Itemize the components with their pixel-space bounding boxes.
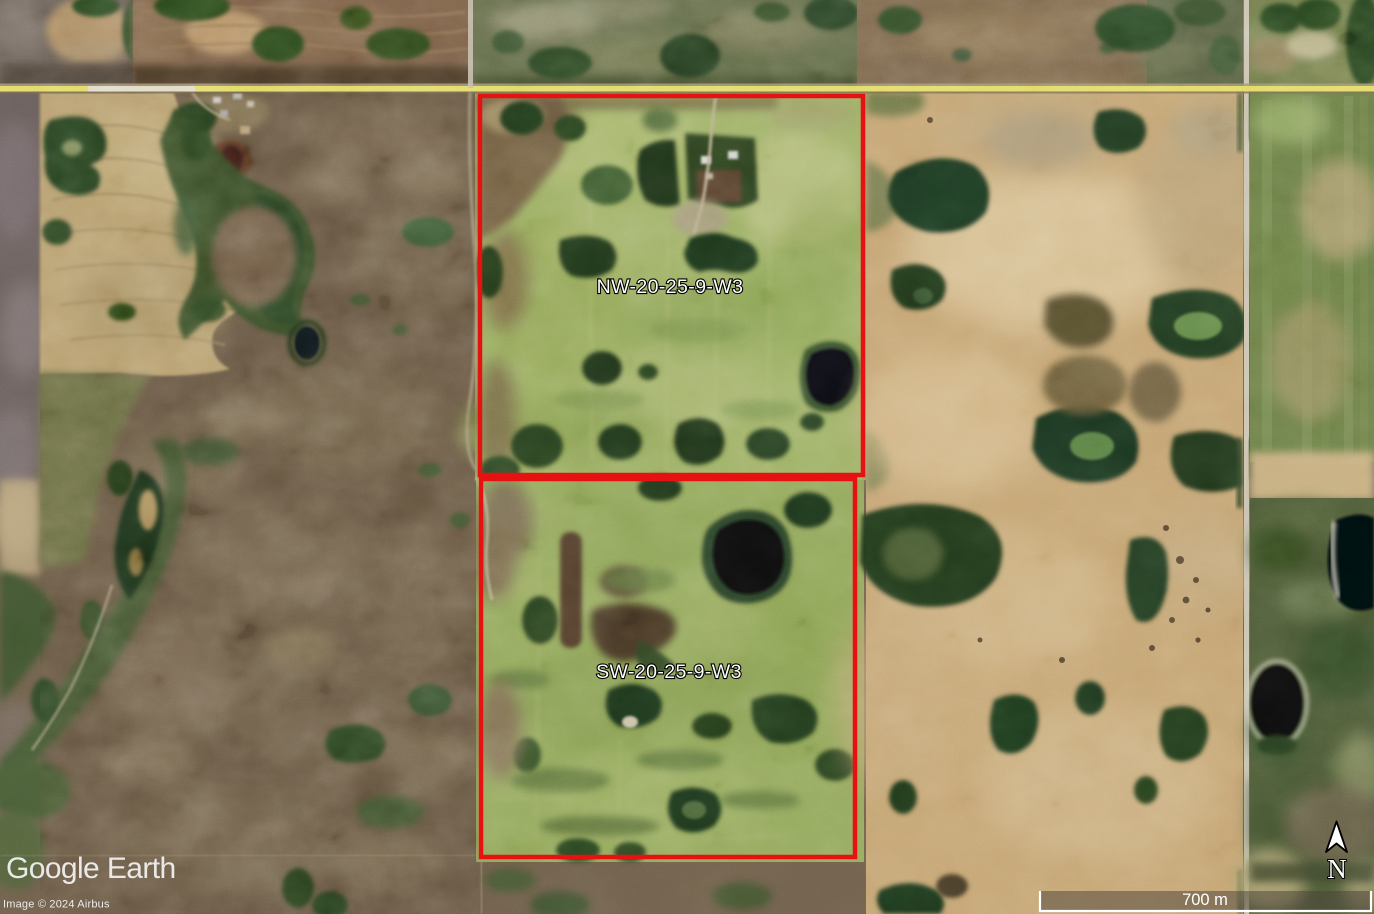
svg-text:NW-20-25-9-W3: NW-20-25-9-W3 (597, 276, 744, 298)
svg-text:Image © 2024 Airbus: Image © 2024 Airbus (3, 899, 110, 911)
svg-text:700 m: 700 m (1182, 891, 1228, 909)
svg-text:Google Earth: Google Earth (6, 852, 176, 885)
svg-text:SW-20-25-9-W3: SW-20-25-9-W3 (596, 661, 742, 683)
svg-text:N: N (1327, 854, 1347, 884)
